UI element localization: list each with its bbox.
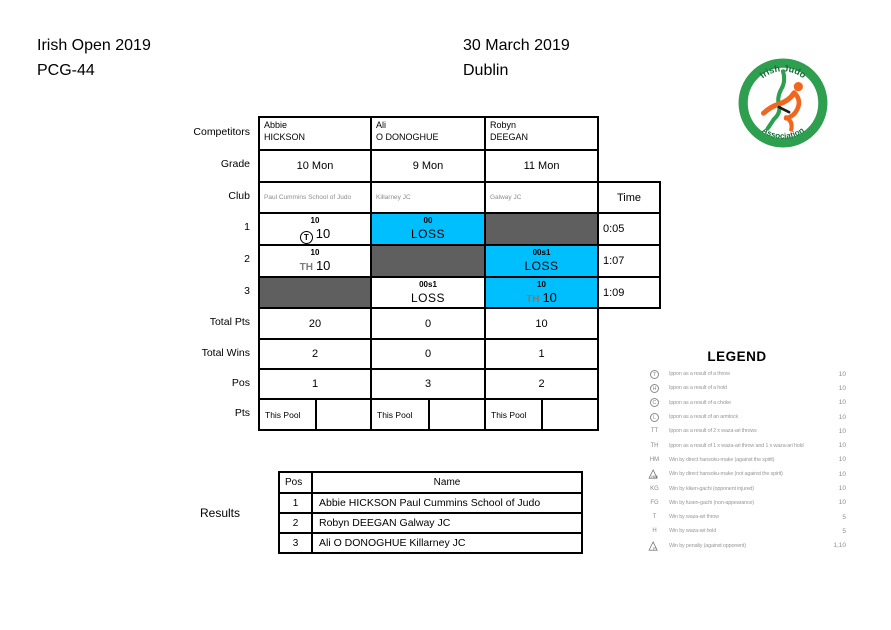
waza-ari-throw-hold-symbol: TH: [300, 262, 313, 273]
row-label-match-3: 3: [30, 285, 250, 297]
time-header-cell: Time: [597, 181, 661, 214]
legend-desc: Ippon as a result of a throw: [669, 371, 730, 377]
legend-desc: Win by penalty (against opponent): [669, 543, 746, 549]
score-top-value: 10: [486, 278, 597, 290]
circle-c-icon: C: [650, 398, 659, 407]
position-cell: 1: [258, 368, 372, 400]
legend-desc: Ippon as a result of a choke: [669, 400, 731, 406]
match-time-value: 1:09: [599, 278, 659, 307]
legend-item: H Ippon as a result of a hold 10: [646, 381, 846, 395]
h-symbol: H: [652, 528, 656, 534]
legend-item: TT Ippon as a result of 2 x waza-ari thr…: [646, 424, 846, 438]
legend-desc: Win by direct hansoku-make (not against …: [669, 471, 783, 477]
match-time-cell: 0:05: [597, 212, 661, 246]
score-main-value: 10: [542, 290, 556, 305]
legend-value: 5: [842, 528, 846, 535]
row-label-pos: Pos: [30, 377, 250, 389]
grade-value: 10 Mon: [260, 151, 370, 181]
legend-item: L Ippon as a result of an armlock 10: [646, 410, 846, 424]
match-cell-loss: 00s1 LOSS: [370, 276, 486, 309]
result-pos: 2: [280, 514, 313, 532]
result-pos: 3: [280, 534, 313, 552]
match-cell-win: 10 TH10: [484, 276, 599, 309]
legend-value: 10: [839, 399, 846, 406]
score-top-value: 00s1: [486, 246, 597, 258]
position-cell: 3: [370, 368, 486, 400]
match-cell-win: 10 TH10: [258, 244, 372, 278]
total-pts-value: 20: [260, 309, 370, 338]
score-main-value: 10: [316, 226, 330, 241]
score-main-value: 10: [316, 258, 330, 273]
results-label: Results: [30, 506, 240, 520]
competitor-name-cell: Robyn DEEGAN: [484, 116, 599, 151]
grade-value: 9 Mon: [372, 151, 484, 181]
position-value: 1: [260, 370, 370, 398]
legend-value: 10: [839, 456, 846, 463]
results-header-pos: Pos: [280, 473, 313, 492]
grade-cell: 10 Mon: [258, 149, 372, 183]
results-row: 2 Robyn DEEGAN Galway JC: [280, 512, 581, 532]
scoresheet-page: Irish Open 2019 PCG-44 30 March 2019 Dub…: [0, 0, 891, 630]
legend-item: TH Ippon as a result of 1 x waza-ari thr…: [646, 438, 846, 452]
total-wins-value: 2: [260, 340, 370, 368]
legend-title: LEGEND: [642, 349, 832, 364]
match-cell-blocked: [484, 212, 599, 246]
total-wins-cell: 1: [484, 338, 599, 370]
this-pool-label: This Pool: [372, 400, 428, 429]
results-row: 3 Ali O DONOGHUE Killarney JC: [280, 532, 581, 552]
circle-h-icon: H: [650, 384, 659, 393]
legend-desc: Ippon as a result of 2 x waza-ari throws: [669, 428, 757, 434]
match-time-value: 1:07: [599, 246, 659, 276]
legend-item: KG Win by kiken-gachi (opponent injured)…: [646, 481, 846, 495]
club-name: Killarney JC: [372, 183, 484, 212]
legend-value: 10: [839, 442, 846, 449]
club-cell: Galway JC: [484, 181, 599, 214]
triangle-penalty-icon: △P: [649, 540, 661, 552]
total-pts-value: 10: [486, 309, 597, 338]
fg-symbol: FG: [650, 500, 658, 506]
ippon-throw-circle-icon: T: [300, 231, 313, 244]
legend-desc: Win by waza-ari hold: [669, 528, 716, 534]
match-cell-blocked: [258, 276, 372, 309]
triangle-letter: P: [649, 546, 661, 551]
pts-this-pool-cell: This Pool: [484, 398, 543, 431]
pts-value-cell: [428, 398, 486, 431]
pts-value-cell: [541, 398, 599, 431]
match-cell-loss: 00s1 LOSS: [484, 244, 599, 278]
event-title: Irish Open 2019: [37, 37, 151, 55]
match-cell-loss: 00 LOSS: [370, 212, 486, 246]
competitor-last-name: DEEGAN: [490, 132, 597, 144]
total-pts-cell: 0: [370, 307, 486, 340]
circle-t-icon: T: [650, 370, 659, 379]
legend-item: T Win by waza-ari throw 5: [646, 510, 846, 524]
t-symbol: T: [653, 514, 657, 520]
total-wins-cell: 2: [258, 338, 372, 370]
results-header-row: Pos Name: [280, 473, 581, 492]
loss-label: LOSS: [411, 291, 445, 305]
legend-desc: Win by direct hansoku-make (against the …: [669, 457, 774, 463]
result-name: Ali O DONOGHUE Killarney JC: [313, 534, 581, 552]
results-table: Pos Name 1 Abbie HICKSON Paul Cummins Sc…: [278, 471, 583, 554]
score-top-value: 00: [372, 214, 484, 226]
legend-desc: Win by kiken-gachi (opponent injured): [669, 486, 754, 492]
triangle-hm-icon: △HM: [649, 468, 661, 480]
pts-value-cell: [315, 398, 372, 431]
results-row: 1 Abbie HICKSON Paul Cummins School of J…: [280, 492, 581, 512]
row-label-club: Club: [30, 190, 250, 202]
legend-desc: Ippon as a result of a hold: [669, 385, 727, 391]
th-symbol: TH: [651, 443, 659, 449]
legend-desc: Win by waza-ari throw: [669, 514, 719, 520]
match-time-value: 0:05: [599, 214, 659, 244]
event-city: Dublin: [463, 62, 508, 80]
grade-cell: 11 Mon: [484, 149, 599, 183]
score-top-value: 10: [260, 214, 370, 226]
total-wins-cell: 0: [370, 338, 486, 370]
legend-item: H Win by waza-ari hold 5: [646, 524, 846, 538]
results-header-name: Name: [313, 473, 581, 492]
total-wins-value: 1: [486, 340, 597, 368]
total-wins-value: 0: [372, 340, 484, 368]
legend-value: 5: [842, 514, 846, 521]
competitor-first-name: Ali: [376, 120, 484, 132]
legend-item: FG Win by fusen-gachi (non-appearance) 1…: [646, 496, 846, 510]
row-label-grade: Grade: [30, 158, 250, 170]
this-pool-label: This Pool: [260, 400, 315, 429]
legend-item: T Ippon as a result of a throw 10: [646, 367, 846, 381]
position-cell: 2: [484, 368, 599, 400]
legend-value: 10: [839, 414, 846, 421]
result-name: Robyn DEEGAN Galway JC: [313, 514, 581, 532]
row-label-match-2: 2: [30, 253, 250, 265]
legend-value: 10: [839, 385, 846, 392]
total-pts-cell: 10: [484, 307, 599, 340]
row-label-total-pts: Total Pts: [30, 316, 250, 328]
legend-item: △HM Win by direct hansoku-make (not agai…: [646, 467, 846, 481]
legend: T Ippon as a result of a throw 10 H Ippo…: [646, 367, 846, 553]
total-pts-value: 0: [372, 309, 484, 338]
result-pos: 1: [280, 494, 313, 512]
score-top-value: 10: [260, 246, 370, 258]
legend-desc: Win by fusen-gachi (non-appearance): [669, 500, 754, 506]
legend-value: 10: [839, 499, 846, 506]
match-time-cell: 1:07: [597, 244, 661, 278]
score-top-value: 00s1: [372, 278, 484, 290]
row-label-match-1: 1: [30, 221, 250, 233]
competitor-name-cell: Ali O DONOGHUE: [370, 116, 486, 151]
this-pool-label: This Pool: [486, 400, 541, 429]
row-label-competitors: Competitors: [30, 126, 250, 138]
result-name: Abbie HICKSON Paul Cummins School of Jud…: [313, 494, 581, 512]
loss-label: LOSS: [411, 227, 445, 241]
legend-value: 10: [839, 471, 846, 478]
legend-item: C Ippon as a result of a choke 10: [646, 396, 846, 410]
tt-symbol: TT: [651, 428, 658, 434]
position-value: 3: [372, 370, 484, 398]
hm-symbol: HM: [650, 457, 659, 463]
match-cell-win: 10 T10: [258, 212, 372, 246]
competitor-last-name: HICKSON: [264, 132, 370, 144]
legend-desc: Ippon as a result of an armlock: [669, 414, 738, 420]
event-date: 30 March 2019: [463, 37, 570, 55]
legend-value: 1,10: [833, 542, 846, 549]
irish-judo-association-logo: Irish Judo Association: [736, 56, 830, 150]
row-label-pts: Pts: [30, 407, 250, 419]
match-cell-blocked: [370, 244, 486, 278]
legend-item: △P Win by penalty (against opponent) 1,1…: [646, 539, 846, 553]
legend-desc: Ippon as a result of 1 x waza-ari throw …: [669, 443, 804, 449]
legend-value: 10: [839, 428, 846, 435]
circle-l-icon: L: [650, 413, 659, 422]
club-name: Paul Cummins School of Judo: [260, 183, 370, 212]
waza-ari-throw-hold-symbol: TH: [526, 294, 539, 305]
total-pts-cell: 20: [258, 307, 372, 340]
pts-this-pool-cell: This Pool: [370, 398, 430, 431]
pool-code: PCG-44: [37, 62, 95, 80]
legend-value: 10: [839, 485, 846, 492]
club-cell: Paul Cummins School of Judo: [258, 181, 372, 214]
competitor-last-name: O DONOGHUE: [376, 132, 484, 144]
legend-value: 10: [839, 371, 846, 378]
club-cell: Killarney JC: [370, 181, 486, 214]
pts-this-pool-cell: This Pool: [258, 398, 317, 431]
kg-symbol: KG: [650, 486, 659, 492]
loss-label: LOSS: [524, 259, 558, 273]
grade-value: 11 Mon: [486, 151, 597, 181]
triangle-letter: HM: [649, 474, 661, 479]
row-label-total-wins: Total Wins: [30, 347, 250, 359]
competitor-first-name: Robyn: [490, 120, 597, 132]
club-name: Galway JC: [486, 183, 597, 212]
grade-cell: 9 Mon: [370, 149, 486, 183]
match-time-cell: 1:09: [597, 276, 661, 309]
competitor-first-name: Abbie: [264, 120, 370, 132]
competitor-name-cell: Abbie HICKSON: [258, 116, 372, 151]
position-value: 2: [486, 370, 597, 398]
legend-item: HM Win by direct hansoku-make (against t…: [646, 453, 846, 467]
time-header-label: Time: [599, 183, 659, 212]
